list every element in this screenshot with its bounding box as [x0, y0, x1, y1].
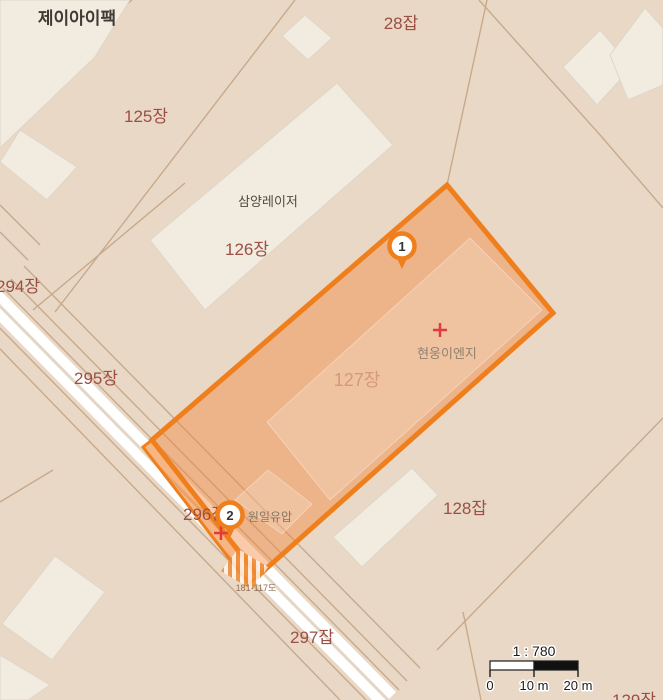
place-label-jay-pack: 제이아이팩 [38, 9, 116, 28]
scale-tick-20m: 20 m [564, 678, 593, 693]
parcel-label-126: 126장 [225, 240, 269, 259]
parcel-label-127: 127장 [334, 370, 381, 390]
cadastral-map-canvas[interactable]: 제이아이팩 28잡 125장 삼양레이저 126장 294장 295장 127장… [0, 0, 663, 700]
place-label-hyunwoong: 현웅이엔지 [417, 346, 477, 361]
place-label-samyang: 삼양레이저 [238, 194, 298, 209]
parcel-label-28: 28잡 [384, 14, 419, 33]
scale-bar-white-segment [490, 661, 534, 670]
parcel-label-128: 128잡 [443, 499, 487, 518]
place-label-wonil: 원일유압 [248, 510, 292, 524]
scale-tick-0: 0 [486, 678, 493, 693]
marker-1-number: 1 [398, 239, 405, 254]
parcel-label-297: 297잡 [290, 628, 334, 647]
parcel-label-125: 125장 [124, 107, 168, 126]
cadastral-map-screen: 제이아이팩 28잡 125장 삼양레이저 126장 294장 295장 127장… [0, 0, 663, 700]
scale-ratio-label: 1 : 780 [513, 643, 556, 659]
scale-tick-10m: 10 m [520, 678, 549, 693]
parcel-label-295: 295장 [74, 369, 118, 388]
parcel-label-129: 129장 [612, 691, 656, 700]
marker-2-number: 2 [226, 508, 233, 523]
parcel-label-294: 294장 [0, 277, 40, 296]
road-label: 181-117도 [236, 583, 277, 593]
scale-bar-black-segment [534, 661, 578, 670]
